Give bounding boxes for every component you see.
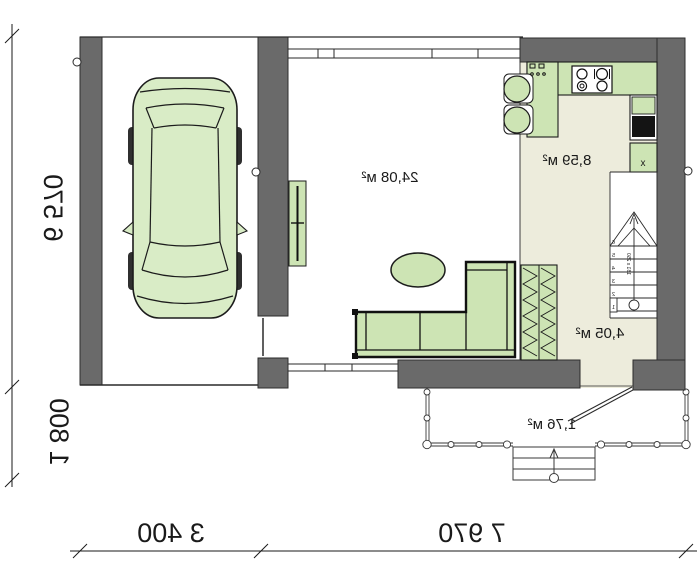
dimension-label-porch-depth: 1 800 [44,398,74,466]
garage-left-wall [80,37,102,385]
porch-steps [513,447,595,483]
wardrobe [521,265,557,360]
stair-note: 181 x 250 [625,253,631,275]
car [123,78,247,318]
right-wall [657,38,685,390]
floor-plan-canvas: x 1 2 3 4 5 6 181 x 250 24,08 м² 8,59 [0,0,700,575]
bottom-wall-left [398,360,580,388]
tv-unit [289,181,306,266]
dimension-label-height-total: 6 570 [38,174,68,242]
washer-mark: x [641,158,646,169]
stair-step-number: 6 [612,240,615,246]
dimension-label-house-width: 7 970 [438,518,506,548]
downpipe-icon [73,58,81,66]
floor-plan-page: x 1 2 3 4 5 6 181 x 250 24,08 м² 8,59 [0,0,700,575]
stair-step-number: 3 [612,279,615,285]
stair-step-number: 5 [612,253,615,259]
porch-area-label: 1,76 м² [528,416,577,433]
stair-step-number: 1 [612,305,615,311]
stair-well-floor [610,172,657,318]
oven [632,116,655,137]
stove [572,66,612,93]
garage-living-wall-pier [258,358,288,388]
sofa-foot [352,309,358,315]
stool-seat [504,76,530,102]
downpipe-icon [252,168,260,176]
garage-living-wall [258,37,288,316]
bottom-wall-right [633,360,685,390]
coffee-table [391,253,445,287]
stair-step-number: 2 [612,292,615,298]
hall-area-label: 4,05 м² [576,325,625,342]
downpipe-icon [684,167,692,175]
entry-threshold-floor [580,360,633,388]
stair-step-number: 4 [612,266,615,272]
cabinet [632,97,655,114]
living-room-area-label: 24,08 м² [361,169,418,186]
appliance-column: x [630,95,657,172]
dimension-label-garage-width: 3 400 [137,518,205,548]
stool-seat [504,107,530,133]
sofa-foot [352,353,358,359]
kitchen-area-label: 8,59 м² [543,152,592,169]
